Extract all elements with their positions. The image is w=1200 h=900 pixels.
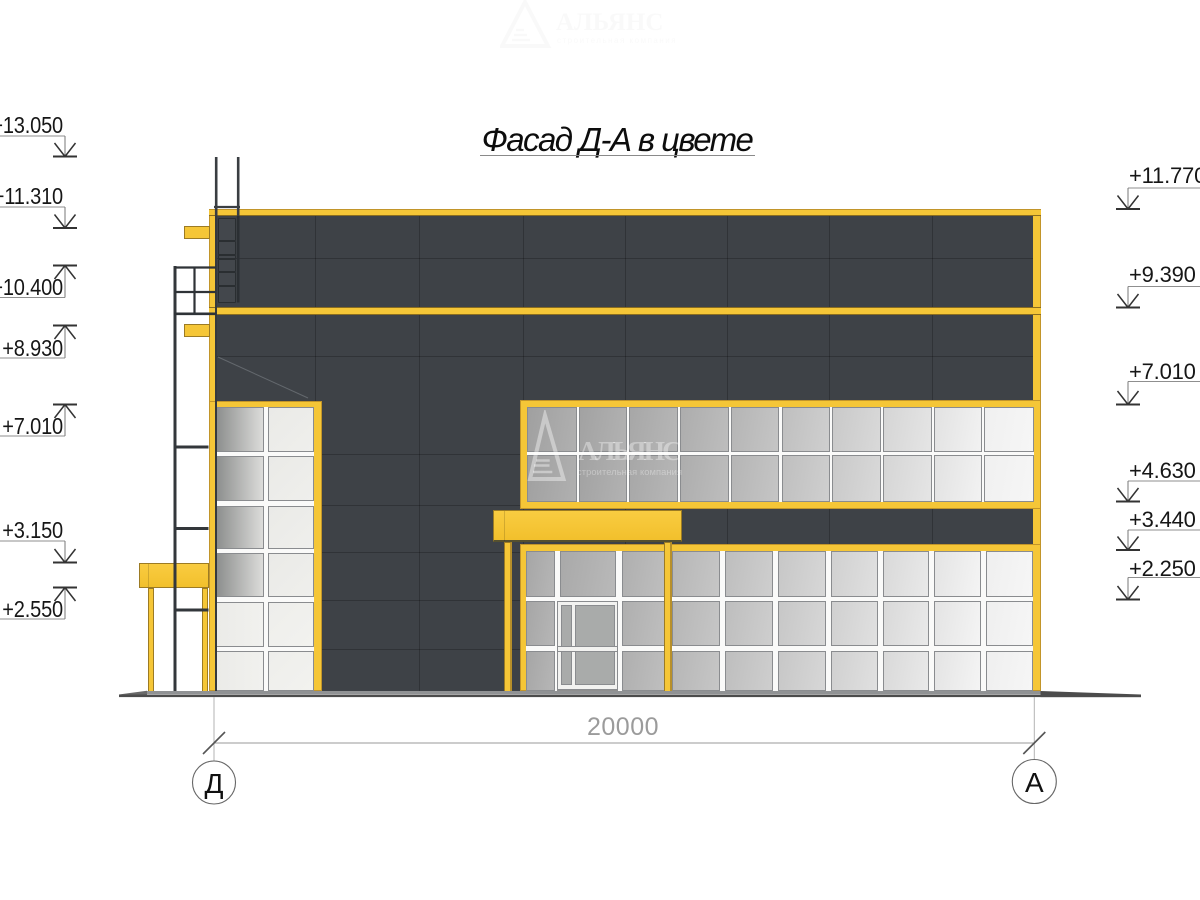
svg-text:АЛЬЯНС: АЛЬЯНС xyxy=(578,435,682,466)
svg-text:строительная компания: строительная компания xyxy=(577,467,682,477)
